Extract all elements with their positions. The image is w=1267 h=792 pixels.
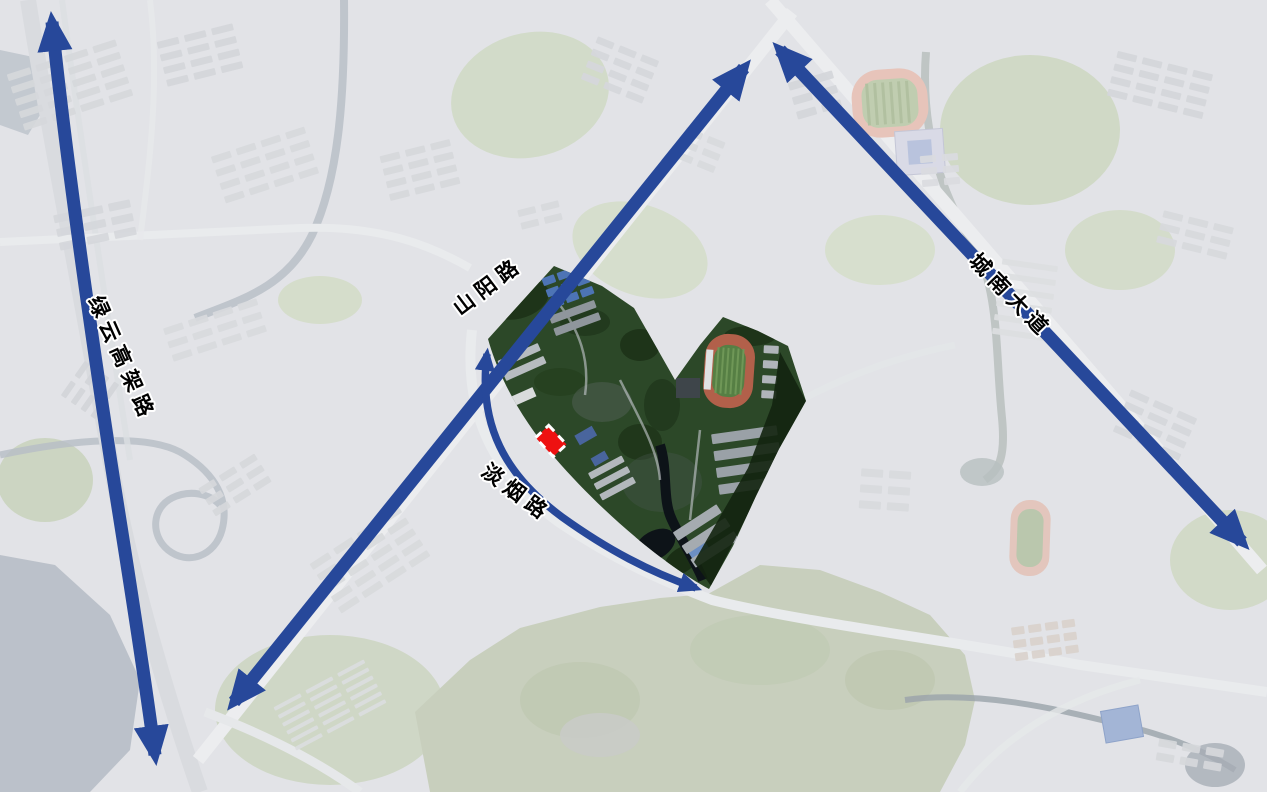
running-track [701,332,756,409]
map-canvas: 绿云高架路 山阳路 城南大道 淡烟路 [0,0,1267,792]
satellite-map: 绿云高架路 山阳路 城南大道 淡烟路 [0,0,1267,792]
